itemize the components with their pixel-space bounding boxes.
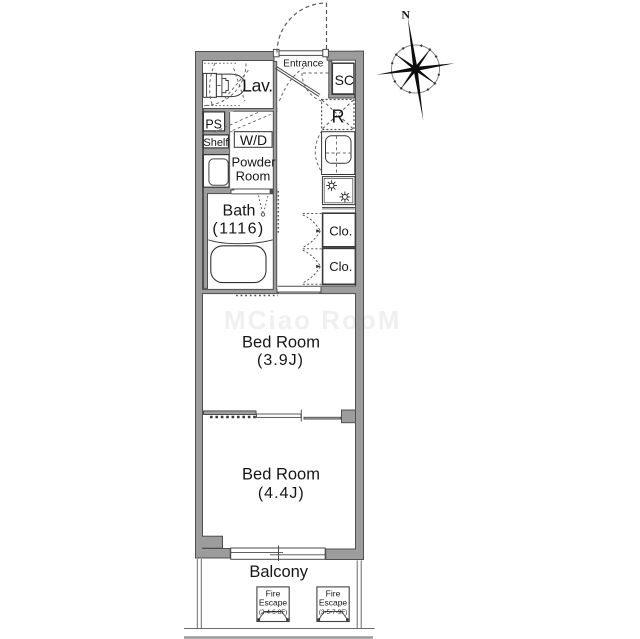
svg-text:Powder: Powder [231,155,276,170]
svg-text:Balcony: Balcony [249,563,308,581]
svg-text:Lav.: Lav. [242,75,273,95]
svg-text:(4.4J): (4.4J) [258,485,305,502]
svg-text:Bed Room: Bed Room [242,466,320,484]
svg-text:MCiao RooM: MCiao RooM [224,305,401,335]
svg-text:Escape: Escape [259,597,288,607]
svg-text:Room: Room [236,169,271,184]
svg-text:(2-4-6-8F): (2-4-6-8F) [259,609,287,616]
svg-text:W/D: W/D [240,132,267,148]
svg-text:(3-5-7-9F): (3-5-7-9F) [319,609,347,616]
svg-text:Bed Room: Bed Room [242,333,320,351]
svg-text:Clo.: Clo. [329,224,352,239]
svg-text:N: N [401,8,410,22]
svg-text:Shelf: Shelf [203,137,229,149]
svg-text:PS: PS [205,117,222,131]
svg-text:Bath: Bath [223,203,256,220]
svg-text:(3.9J): (3.9J) [257,352,304,369]
svg-text:SC: SC [335,72,354,88]
svg-text:R: R [332,106,345,126]
svg-text:Clo.: Clo. [329,259,352,274]
svg-text:(1116): (1116) [212,221,264,238]
svg-text:Escape: Escape [319,597,348,607]
